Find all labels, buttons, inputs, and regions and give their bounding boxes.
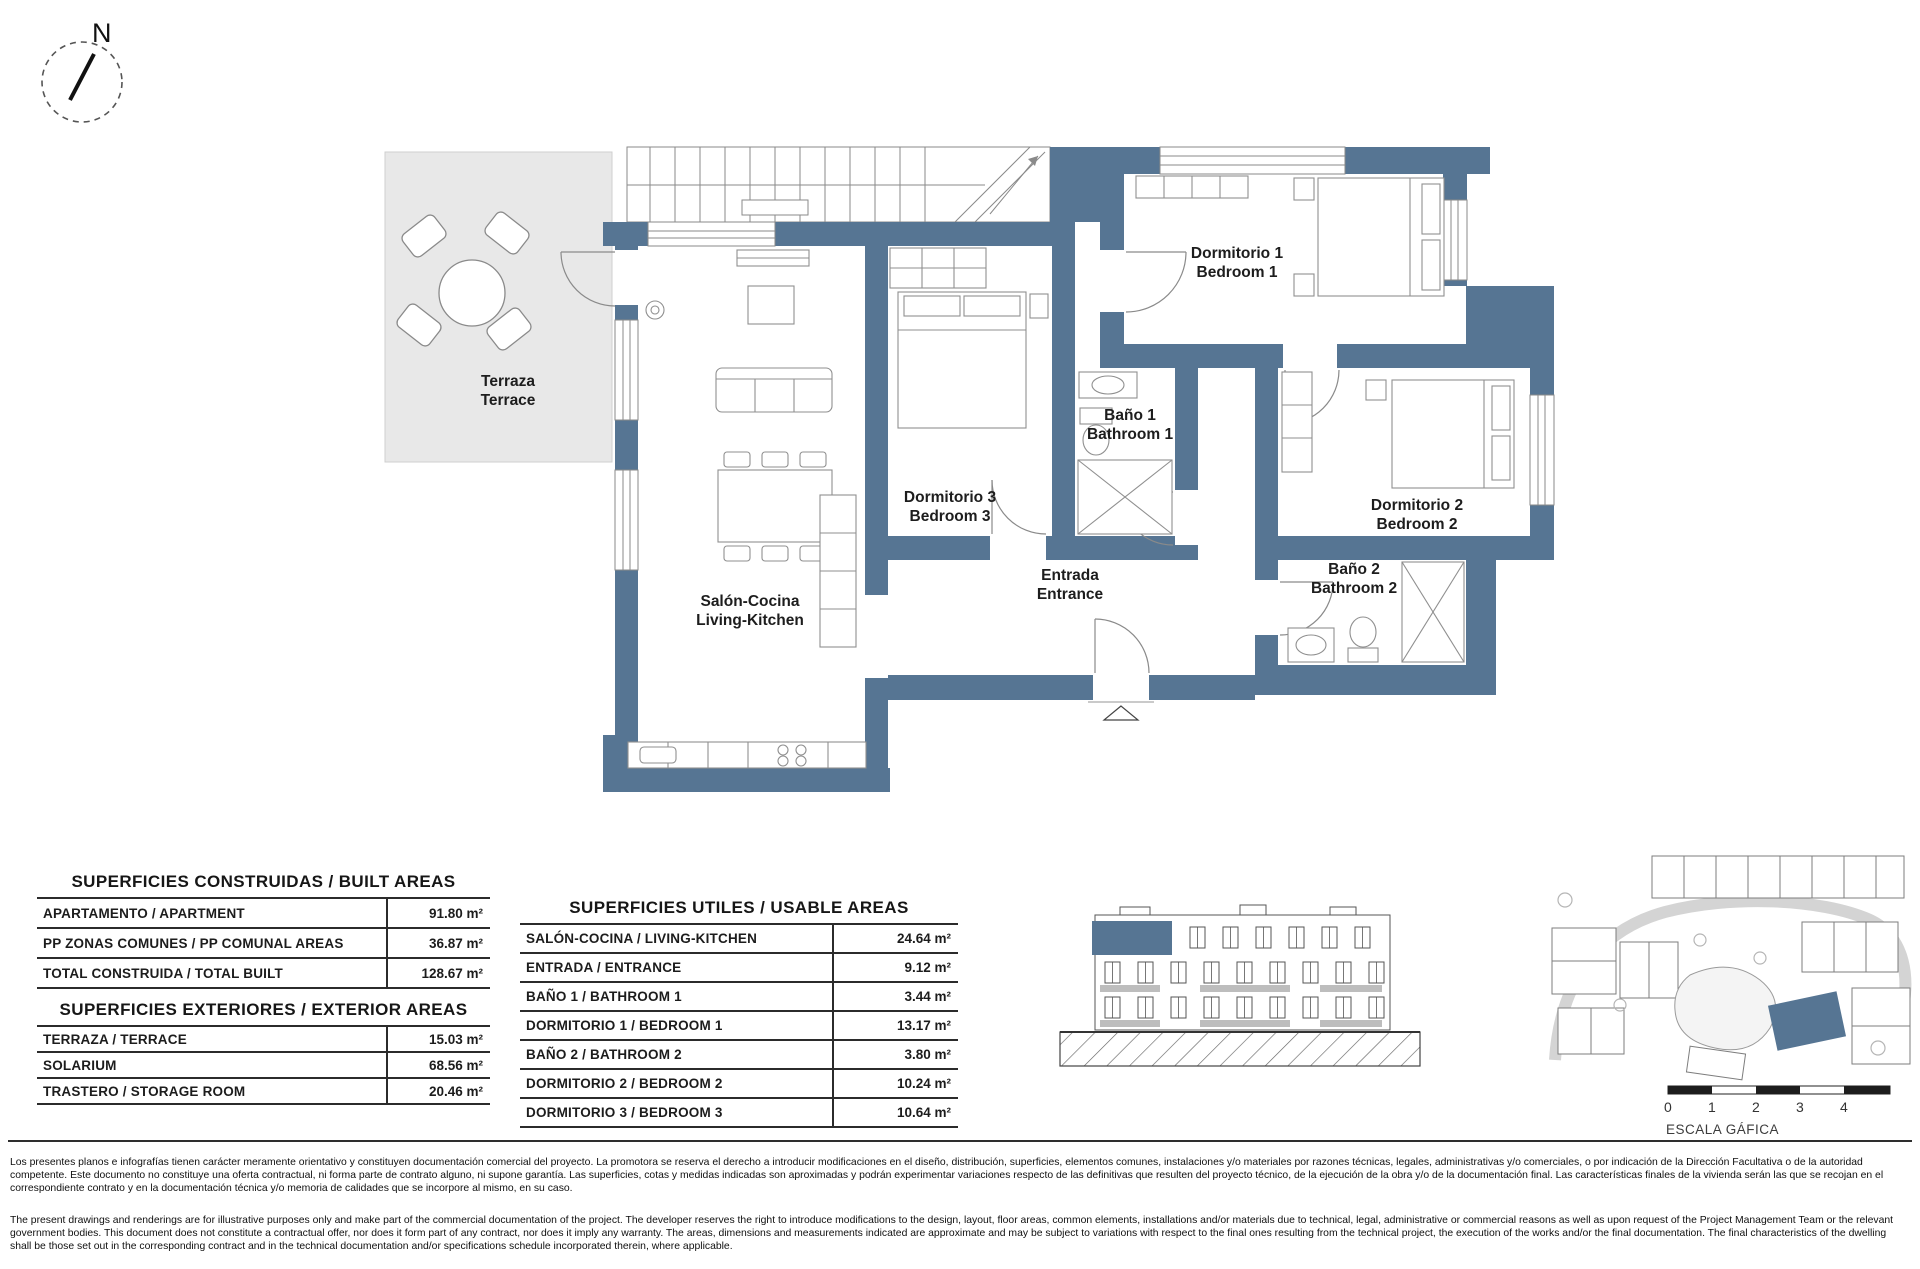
sink-icon	[640, 747, 676, 763]
stairs	[627, 147, 1050, 222]
compass-north-label: N	[92, 18, 112, 48]
scale-bar-label: ESCALA GÁFICA	[1666, 1122, 1779, 1137]
site-plan: 0 1 2 3 4 ESCALA GÁFICA	[1552, 856, 1910, 1137]
bed-icon	[1392, 380, 1514, 488]
table-row: DORMITORIO 3 / BEDROOM 3 10.64 m²	[520, 1099, 958, 1128]
nightstand-icon	[1294, 178, 1314, 200]
usable-areas-table: SUPERFICIES UTILES / USABLE AREAS SALÓN-…	[520, 898, 958, 1128]
scale-tick: 2	[1752, 1099, 1760, 1115]
wardrobe-icon	[1282, 372, 1312, 472]
highlighted-unit	[1092, 921, 1172, 955]
site-building-cluster	[1686, 1046, 1745, 1080]
table-row: PP ZONAS COMUNES / PP COMUNAL AREAS 36.8…	[37, 929, 490, 959]
disclaimer-spanish: Los presentes planos e infografías tiene…	[10, 1156, 1910, 1195]
room-label-bano2: Baño 2Bathroom 2	[1311, 560, 1397, 598]
table-row: TOTAL CONSTRUIDA / TOTAL BUILT 128.67 m²	[37, 959, 490, 989]
floor-plan-sheet: N	[0, 0, 1920, 1269]
table-row: BAÑO 1 / BATHROOM 1 3.44 m²	[520, 983, 958, 1012]
wardrobe-icon	[1136, 176, 1248, 198]
built-areas-title: SUPERFICIES CONSTRUIDAS / BUILT AREAS	[37, 872, 490, 897]
nightstand-icon	[1030, 294, 1048, 318]
sink-icon	[1288, 628, 1334, 662]
site-building-cluster	[1552, 928, 1678, 1054]
usable-areas-title: SUPERFICIES UTILES / USABLE AREAS	[520, 898, 958, 923]
site-highlighted-building	[1768, 991, 1846, 1051]
bed-icon	[898, 292, 1026, 428]
table-row: TRASTERO / STORAGE ROOM 20.46 m²	[37, 1079, 490, 1105]
room-label-bano1: Baño 1Bathroom 1	[1087, 406, 1173, 444]
compass-needle-icon	[70, 54, 94, 100]
nightstand-icon	[1294, 274, 1314, 296]
dining-table-icon	[718, 452, 832, 561]
scale-tick: 3	[1796, 1099, 1804, 1115]
wardrobe-icon	[890, 248, 986, 288]
table-row: SALÓN-COCINA / LIVING-KITCHEN 24.64 m²	[520, 925, 958, 954]
site-building-cluster	[1652, 856, 1904, 898]
table-row: APARTAMENTO / APARTMENT 91.80 m²	[37, 899, 490, 929]
radiator-icon	[646, 301, 664, 319]
table-row: TERRAZA / TERRACE 15.03 m²	[37, 1027, 490, 1053]
room-label-salon: Salón-CocinaLiving-Kitchen	[696, 592, 804, 630]
scale-tick: 1	[1708, 1099, 1716, 1115]
disclaimer-english: The present drawings and renderings are …	[10, 1214, 1910, 1253]
room-label-dormitorio3: Dormitorio 3Bedroom 3	[904, 488, 996, 526]
kitchen-counter	[628, 742, 866, 768]
room-label-dormitorio1: Dormitorio 1Bedroom 1	[1191, 244, 1283, 282]
scale-tick: 4	[1840, 1099, 1848, 1115]
tv-unit-icon	[737, 250, 809, 266]
table-row: ENTRADA / ENTRANCE 9.12 m²	[520, 954, 958, 983]
room-label-terraza: TerrazaTerrace	[481, 372, 536, 410]
built-areas-table: SUPERFICIES CONSTRUIDAS / BUILT AREAS AP…	[37, 872, 490, 989]
site-garden	[1675, 967, 1776, 1050]
entrance-marker-icon	[1088, 702, 1154, 720]
site-building-cluster	[1802, 922, 1910, 1064]
shower-icon	[1402, 562, 1464, 662]
shower-icon	[1078, 460, 1172, 534]
toilet-icon	[1348, 617, 1378, 662]
table-row: DORMITORIO 2 / BEDROOM 2 10.24 m²	[520, 1070, 958, 1099]
ground-hatch	[1060, 1032, 1420, 1066]
sofa-icon	[716, 368, 832, 412]
table-row: DORMITORIO 1 / BEDROOM 1 13.17 m²	[520, 1012, 958, 1041]
coffee-table-icon	[748, 286, 794, 324]
room-label-dormitorio2: Dormitorio 2Bedroom 2	[1371, 496, 1463, 534]
table-row: SOLARIUM 68.56 m²	[37, 1053, 490, 1079]
sink-icon	[1079, 372, 1137, 398]
scale-bar: 0 1 2 3 4 ESCALA GÁFICA	[1664, 1086, 1890, 1137]
kitchen-peninsula	[820, 495, 856, 647]
terrace-area	[385, 152, 612, 462]
table-row: BAÑO 2 / BATHROOM 2 3.80 m²	[520, 1041, 958, 1070]
footer-separator	[8, 1140, 1912, 1142]
scale-tick: 0	[1664, 1099, 1672, 1115]
nightstand-icon	[1366, 380, 1386, 400]
exterior-areas-table: SUPERFICIES EXTERIORES / EXTERIOR AREAS …	[37, 1000, 490, 1105]
bed-icon	[1318, 178, 1444, 296]
exterior-areas-title: SUPERFICIES EXTERIORES / EXTERIOR AREAS	[37, 1000, 490, 1025]
north-compass: N	[42, 18, 122, 122]
room-label-entrada: EntradaEntrance	[1037, 566, 1103, 604]
building-elevation	[1060, 905, 1420, 1066]
